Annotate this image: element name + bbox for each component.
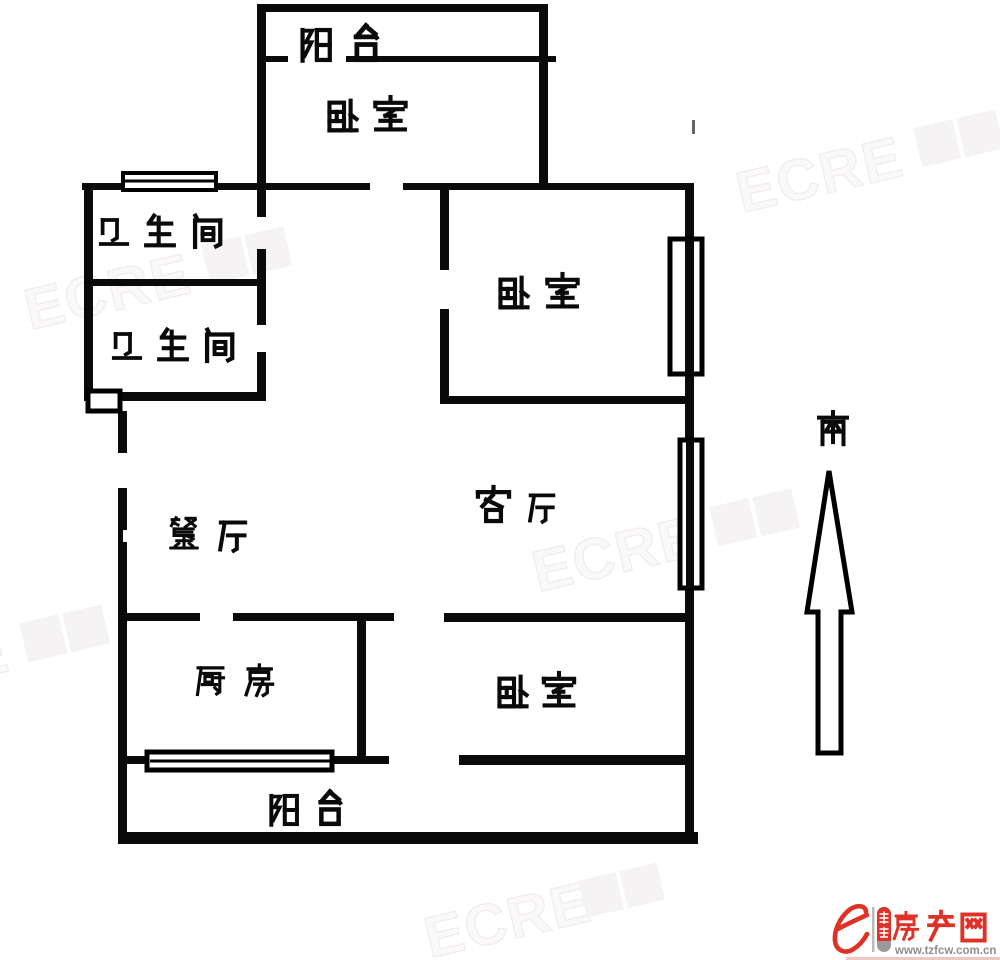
svg-text:www.tzfcw.com.cn: www.tzfcw.com.cn bbox=[894, 945, 996, 957]
svg-text:ECRE: ECRE bbox=[730, 124, 909, 225]
svg-text:ECRE: ECRE bbox=[418, 869, 597, 960]
svg-text:ECRE: ECRE bbox=[0, 619, 16, 720]
svg-text:ECRE: ECRE bbox=[18, 241, 197, 342]
